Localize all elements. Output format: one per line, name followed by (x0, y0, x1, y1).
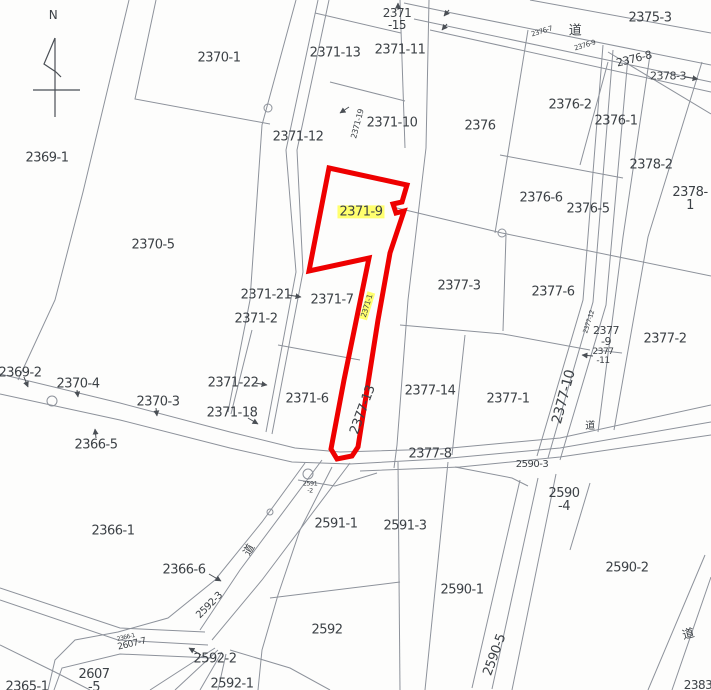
parcel-label-2377-6: 2377-6 (531, 285, 574, 298)
parcel-label-2375-3: 2375-3 (628, 11, 671, 24)
parcel-label-2370-3: 2370-3 (136, 395, 179, 408)
parcel-label-2366-5: 2366-5 (74, 438, 117, 451)
parcel-label-2371-18: 2371-18 (207, 406, 258, 419)
parcel-label-2371-2: 2371-2 (234, 312, 277, 325)
parcel-label-2371-10: 2371-10 (367, 116, 418, 129)
selected-parcel-label: 2371-9 (337, 205, 384, 218)
parcel-label-2365-1: 2365-1 (5, 680, 48, 690)
parcel-label-2377-1: 2377-1 (486, 392, 529, 405)
compass-n-label: N (49, 9, 57, 21)
parcel-label-2592-2: 2592-2 (193, 652, 236, 665)
road-label: 道 (585, 422, 595, 432)
parcel-label-2590-4: 2590 -4 (548, 487, 579, 514)
parcel-label-2592: 2592 (311, 623, 342, 636)
parcel-label-2591-1: 2591-1 (314, 517, 357, 530)
parcel-label-2371-7: 2371-7 (310, 293, 353, 306)
parcel-label-2376-2: 2376-2 (548, 98, 591, 111)
parcel-label-2591-2: 2591 -2 (303, 480, 318, 493)
parcel-label-2376-8: 2376-8 (615, 49, 653, 69)
parcel-label-2371-12: 2371-12 (273, 130, 324, 143)
parcel-label-2376-1: 2376-1 (594, 114, 637, 127)
parcel-label-2376-7: 2376-7 (531, 25, 554, 38)
parcel-label-2591-3: 2591-3 (383, 519, 426, 532)
parcel-label-2371-13: 2371-13 (310, 46, 361, 59)
parcel-label-2378-1: 2378-1 (672, 186, 707, 213)
parcel-label-2376-6: 2376-6 (519, 191, 562, 204)
parcel-label-2366-6: 2366-6 (162, 563, 205, 576)
parcel-label-2376-9: 2376-9 (574, 39, 597, 52)
parcel-label-2377-9: 2377 -9 (593, 325, 619, 347)
parcel-label-2377-11: 2377 -11 (593, 348, 614, 366)
parcel-label-2378-2: 2378-2 (629, 158, 672, 171)
parcel-label-2371-19: 2371-19 (350, 108, 366, 139)
parcel-label-2590-3: 2590-3 (516, 460, 548, 470)
parcel-label-2590-5: 2590-5 (481, 633, 508, 678)
road-label: 道 (681, 627, 695, 642)
parcel-label-2592-1: 2592-1 (210, 677, 253, 690)
parcel-label-2377-8: 2377-8 (408, 447, 451, 460)
parcel-label-2378-3: 2378-3 (650, 70, 686, 81)
parcel-label-2371-1: 2371-1 (359, 292, 374, 321)
road-label: 道 (569, 24, 582, 37)
parcel-label-2592-3: 2592-3 (195, 591, 225, 621)
parcel-label-2370-1: 2370-1 (197, 51, 240, 64)
parcel-label-2377-14: 2377-14 (405, 384, 456, 397)
parcel-label-2369-2: 2369-2 (0, 366, 42, 379)
labels-layer: N2369-12370-12371-132371 -152371-112375-… (0, 0, 711, 690)
cadastral-map: N2369-12370-12371-132371 -152371-112375-… (0, 0, 711, 690)
parcel-label-2383: 2383 (684, 679, 711, 690)
parcel-label-2607-5: 2607 -5 (78, 668, 109, 690)
road-label: 道 (242, 543, 257, 558)
parcel-label-2371-11: 2371-11 (375, 43, 426, 56)
parcel-label-2366-1: 2366-1 (91, 524, 134, 537)
parcel-label-2377-13: 2377-13 (348, 384, 378, 436)
parcel-label-2371-22: 2371-22 (208, 376, 259, 389)
parcel-label-2371-6: 2371-6 (285, 392, 328, 405)
parcel-label-2377-3: 2377-3 (437, 279, 480, 292)
parcel-label-2370-5: 2370-5 (131, 238, 174, 251)
parcel-label-2376: 2376 (464, 119, 495, 132)
parcel-label-2370-4: 2370-4 (56, 377, 99, 390)
parcel-label-2376-5: 2376-5 (566, 202, 609, 215)
parcel-label-2371-21: 2371-21 (241, 288, 292, 301)
parcel-label-2369-1: 2369-1 (25, 151, 68, 164)
parcel-label-2377-2: 2377-2 (643, 332, 686, 345)
parcel-label-2590-2: 2590-2 (605, 561, 648, 574)
parcel-label-2377-10: 2377-10 (550, 369, 578, 426)
parcel-label-2371-15: 2371 -15 (383, 7, 412, 31)
parcel-label-2590-1: 2590-1 (440, 583, 483, 596)
